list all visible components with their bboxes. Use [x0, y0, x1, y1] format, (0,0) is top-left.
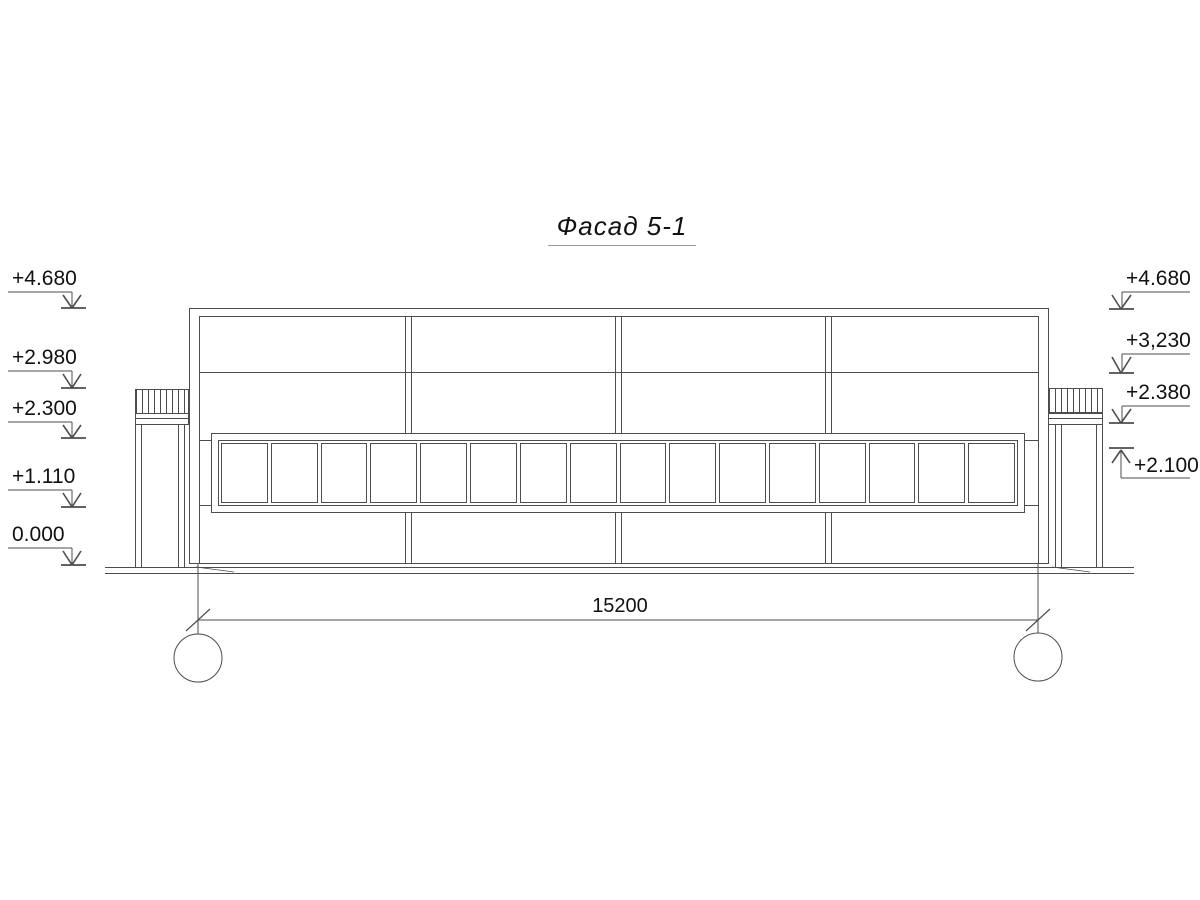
elevation-mark-line [72, 295, 81, 308]
vent-grille-left [135, 389, 189, 414]
elevation-mark-line [1112, 357, 1121, 373]
elevation-label: +2.100 [1134, 454, 1199, 478]
window-pane [321, 443, 368, 503]
window-pane [620, 443, 667, 503]
facade-drawing: Фасад 5-1 15200 5 1 +4.68 [0, 0, 1200, 900]
window-pane [221, 443, 268, 503]
elevation-label: +2.380 [1126, 381, 1191, 405]
dimension-value: 15200 [558, 595, 682, 618]
base-plinth [105, 567, 1134, 574]
window-pane [719, 443, 766, 503]
vent-grille-right [1048, 388, 1103, 413]
elevation-label: +4.680 [1126, 267, 1191, 291]
elevation-mark-line [1121, 409, 1131, 423]
window-band [218, 440, 1018, 506]
window-pane [520, 443, 567, 503]
sill-stub-right-bottom [1025, 505, 1038, 506]
elevation-label: +3,230 [1126, 329, 1191, 353]
elevation-mark-line [1121, 357, 1131, 373]
sill-stub-right-top [1025, 440, 1038, 441]
elevation-mark-line [1112, 450, 1121, 463]
axis-circle-label-1: 1 [1014, 643, 1062, 672]
window-pane [869, 443, 916, 503]
window-pane [819, 443, 866, 503]
window-pane [271, 443, 318, 503]
wall-inner-right [1038, 317, 1039, 563]
vent-post [178, 424, 185, 567]
elevation-label: +2.980 [12, 346, 77, 370]
elevation-mark-line [1121, 295, 1131, 309]
window-pane [570, 443, 617, 503]
dimension-tick-left [186, 609, 210, 631]
elevation-label: +4.680 [12, 267, 77, 291]
window-pane [918, 443, 965, 503]
window-pane [769, 443, 816, 503]
vent-post [1096, 424, 1103, 567]
vent-post [135, 424, 142, 567]
elevation-label: +1.110 [12, 465, 75, 489]
elevation-label: +2.300 [12, 397, 77, 421]
elevation-mark-line [63, 295, 72, 308]
window-pane [968, 443, 1015, 503]
elevation-mark-line [72, 493, 81, 507]
elevation-mark-line [72, 374, 81, 388]
sill-stub-left-bottom [199, 505, 211, 506]
window-pane [669, 443, 716, 503]
sill-stub-left-top [199, 440, 211, 441]
elevation-mark-line [63, 425, 72, 438]
elevation-mark-line [72, 425, 81, 438]
window-pane [370, 443, 417, 503]
elevation-mark-line [1112, 295, 1121, 309]
elevation-mark-line [1112, 409, 1121, 423]
elevation-mark-line [1121, 450, 1130, 463]
drawing-title: Фасад 5-1 [548, 211, 696, 246]
axis-circle-label-5: 5 [174, 643, 222, 672]
window-pane [420, 443, 467, 503]
vent-band-line [136, 418, 188, 419]
vent-band-line [1049, 418, 1102, 419]
window-pane [470, 443, 517, 503]
elevation-mark-line [63, 493, 72, 507]
dimension-tick-right [1026, 609, 1050, 631]
elevation-label: 0.000 [12, 523, 65, 547]
elevation-mark-line [72, 551, 81, 565]
elevation-mark-line [63, 374, 72, 388]
vent-post [1055, 424, 1062, 567]
elevation-mark-line [63, 551, 72, 565]
